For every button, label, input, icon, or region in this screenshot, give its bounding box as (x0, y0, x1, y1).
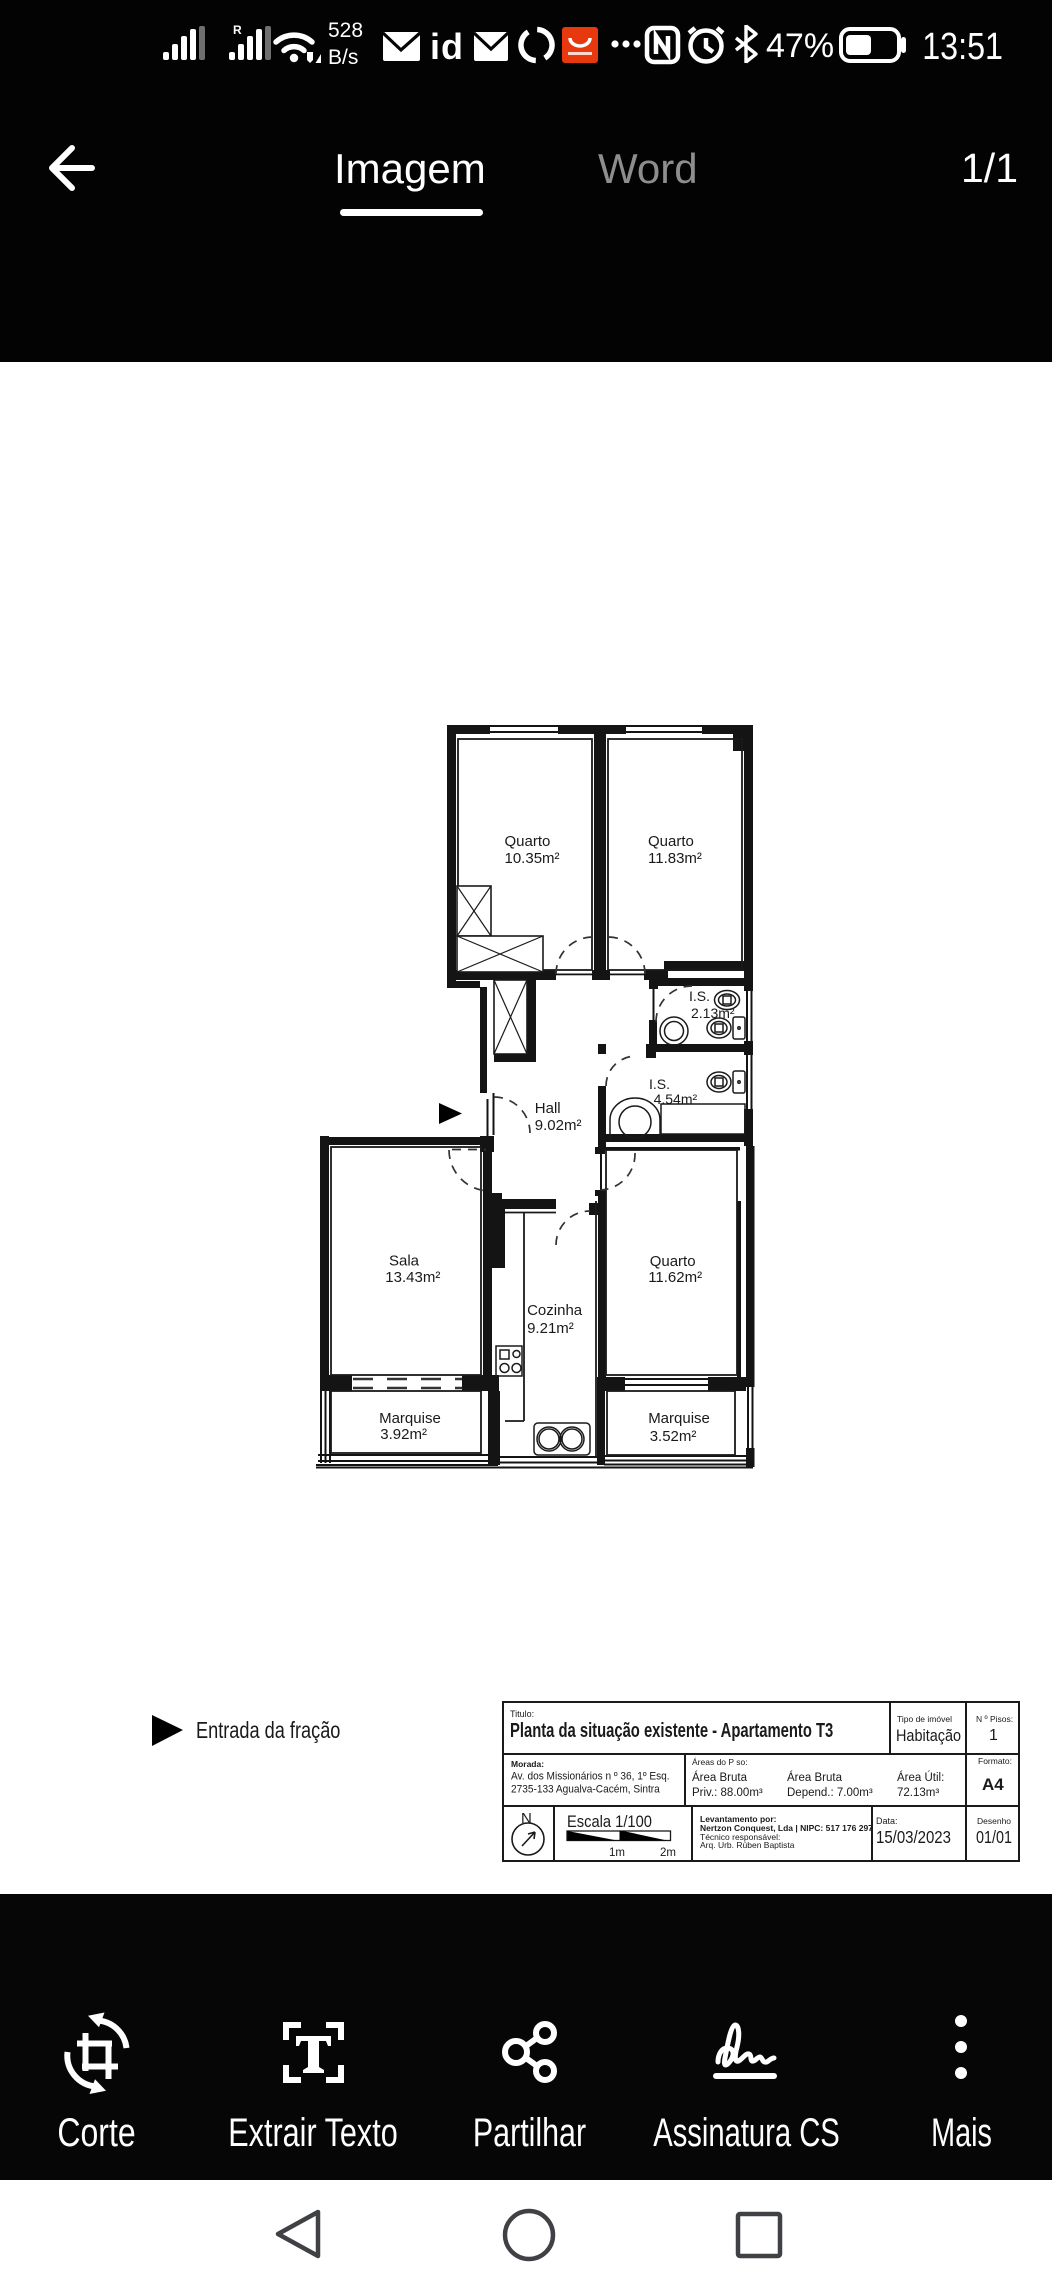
svg-text:Escala 1/100: Escala 1/100 (567, 1813, 652, 1831)
svg-text:11.83m²: 11.83m² (648, 850, 702, 867)
svg-text:1/1: 1/1 (961, 145, 1018, 191)
svg-text:13:51: 13:51 (922, 26, 1003, 68)
svg-text:11.62m²: 11.62m² (648, 1269, 702, 1286)
svg-text:528: 528 (328, 19, 363, 42)
svg-text:47%: 47% (766, 27, 834, 65)
svg-text:9.02m²: 9.02m² (535, 1117, 582, 1134)
svg-text:N º Pisos:: N º Pisos: (976, 1714, 1013, 1724)
svg-text:Depend.: 7.00m³: Depend.: 7.00m³ (787, 1787, 873, 1799)
svg-text:R: R (233, 23, 242, 37)
svg-text:Planta da situação existente -: Planta da situação existente - Apartamen… (510, 1719, 833, 1742)
svg-text:Hall: Hall (535, 1100, 561, 1117)
svg-text:Marquise: Marquise (648, 1410, 710, 1427)
svg-text:10.35m²: 10.35m² (505, 850, 560, 867)
svg-text:1m: 1m (609, 1847, 625, 1859)
svg-text:Av. dos Missionários n º 36, 1: Av. dos Missionários n º 36, 1º Esq. (511, 1770, 670, 1782)
svg-text:Quarto: Quarto (648, 833, 694, 850)
svg-text:3.52m²: 3.52m² (650, 1428, 697, 1445)
svg-text:9.21m²: 9.21m² (527, 1320, 574, 1337)
svg-text:Marquise: Marquise (379, 1410, 441, 1427)
svg-text:2.13m²: 2.13m² (691, 1005, 735, 1021)
svg-text:15/03/2023: 15/03/2023 (876, 1827, 951, 1848)
svg-text:Área Bruta: Área Bruta (787, 1771, 843, 1784)
svg-text:01/01: 01/01 (976, 1828, 1012, 1848)
svg-text:Word: Word (598, 145, 698, 192)
svg-text:Imagem: Imagem (334, 145, 486, 192)
svg-text:4.54m²: 4.54m² (654, 1091, 698, 1107)
svg-text:Morada:: Morada: (511, 1759, 544, 1769)
svg-text:Cozinha: Cozinha (527, 1302, 583, 1319)
svg-text:Sala: Sala (389, 1253, 420, 1270)
svg-text:Área Útil:: Área Útil: (897, 1771, 944, 1784)
svg-text:Partilhar: Partilhar (473, 2110, 586, 2155)
svg-text:Priv.: 88.00m³: Priv.: 88.00m³ (692, 1787, 763, 1799)
svg-text:1: 1 (989, 1727, 998, 1744)
svg-text:Titulo:: Titulo: (510, 1709, 534, 1719)
svg-text:Formato:: Formato: (978, 1756, 1012, 1766)
svg-text:Desenho: Desenho (977, 1816, 1011, 1826)
svg-text:Data:: Data: (876, 1816, 898, 1826)
svg-text:13.43m²: 13.43m² (385, 1269, 440, 1286)
svg-text:B/s: B/s (328, 46, 358, 69)
svg-text:Quarto: Quarto (505, 833, 551, 850)
svg-text:Assinatura CS: Assinatura CS (653, 2111, 840, 2156)
svg-text:Área Bruta: Área Bruta (692, 1771, 748, 1784)
svg-text:Entrada da fração: Entrada da fração (196, 1718, 340, 1744)
svg-text:Extrair Texto: Extrair Texto (228, 2110, 397, 2155)
svg-text:Quarto: Quarto (650, 1253, 696, 1270)
svg-text:72.13m³: 72.13m³ (897, 1787, 939, 1799)
svg-text:Arq. Urb. Rúben Baptista: Arq. Urb. Rúben Baptista (700, 1840, 795, 1850)
svg-text:Habitação: Habitação (896, 1727, 961, 1745)
svg-text:2735-133 Agualva-Cacém, Sintra: 2735-133 Agualva-Cacém, Sintra (511, 1783, 660, 1795)
svg-text:3.92m²: 3.92m² (380, 1426, 427, 1443)
svg-text:A4: A4 (982, 1775, 1004, 1794)
svg-text:Tipo de imóvel: Tipo de imóvel (897, 1714, 952, 1724)
svg-text:I.S.: I.S. (649, 1076, 670, 1092)
svg-text:id: id (430, 26, 464, 67)
svg-text:I.S.: I.S. (689, 988, 710, 1004)
svg-text:Áreas do P so:: Áreas do P so: (692, 1757, 748, 1767)
svg-text:Mais: Mais (931, 2110, 992, 2155)
svg-text:2m: 2m (660, 1847, 676, 1859)
svg-text:Corte: Corte (57, 2110, 135, 2155)
